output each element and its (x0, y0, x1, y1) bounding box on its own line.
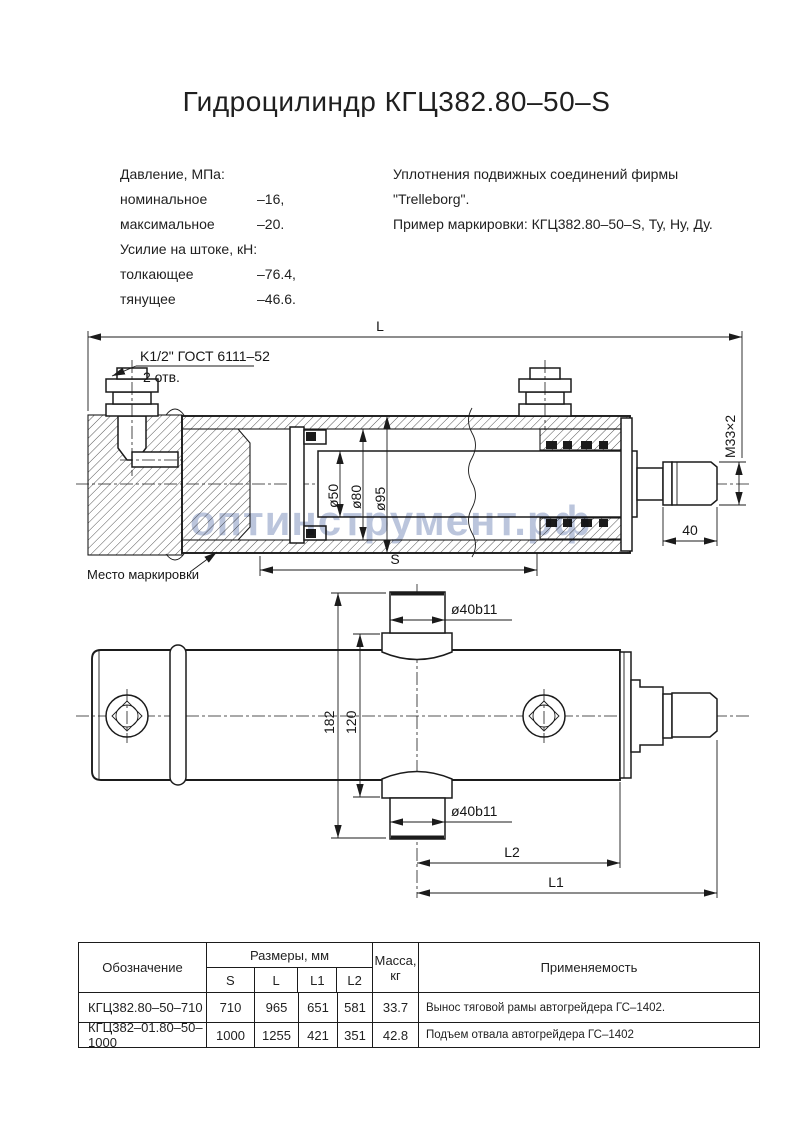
dim-tip-length-label: 40 (682, 522, 698, 538)
row1-s: 710 (207, 993, 255, 1022)
dim-pin-bottom-label: ø40b11 (451, 803, 498, 819)
row2-designation: КГЦ382–01.80–50–1000 (79, 1023, 207, 1047)
col-l-header: L (255, 968, 299, 992)
barrel-top-wall (182, 416, 630, 429)
table-header-row: Обозначение Размеры, мм S L L1 L2 Масса,… (79, 943, 759, 993)
row1-l1: 651 (299, 993, 338, 1022)
dimensions-subheader-row: S L L1 L2 (207, 968, 372, 992)
col-designation-header: Обозначение (79, 943, 207, 992)
dim-l1-label: L1 (548, 874, 564, 890)
port-thread-note: K1/2" ГОСТ 6111–52 (140, 348, 270, 364)
parameters-table: Обозначение Размеры, мм S L L1 L2 Масса,… (78, 942, 760, 1048)
col-dimensions-header: Размеры, мм (207, 943, 372, 968)
col-mass-header-line1: Масса, (374, 953, 416, 968)
marking-place-note: Место маркировки (87, 567, 199, 582)
bottom-trunnion (382, 772, 452, 840)
row2-mass: 42.8 (373, 1023, 419, 1047)
left-port-boss (106, 689, 148, 743)
site-watermark: оптинструмент.рф (190, 497, 591, 545)
dim-overall-length-label: L (376, 318, 384, 334)
top-trunnion (382, 592, 452, 660)
rear-cap-block (88, 409, 186, 560)
col-l1-header: L1 (298, 968, 337, 992)
port-channel (132, 452, 178, 467)
row2-l: 1255 (255, 1023, 299, 1047)
rod-end-thread (637, 462, 717, 505)
col-dimensions-group: Размеры, мм S L L1 L2 (207, 943, 373, 992)
dim-trunnion-height-label: 182 (321, 710, 337, 734)
dim-pin-top-label: ø40b11 (451, 601, 498, 617)
row1-designation: КГЦ382.80–50–710 (79, 993, 207, 1022)
col-mass-header-line2: кг (390, 968, 400, 983)
col-mass-header: Масса, кг (373, 943, 419, 992)
col-application-header: Применяемость (419, 943, 759, 992)
row2-application: Подъем отвала автогрейдера ГС–1402 (419, 1023, 759, 1047)
table-row: КГЦ382.80–50–710 710 965 651 581 33.7 Вы… (79, 993, 759, 1023)
col-s-header: S (207, 968, 255, 992)
marking-note-leader (190, 552, 217, 572)
row2-s: 1000 (207, 1023, 255, 1047)
table-row: КГЦ382–01.80–50–1000 1000 1255 421 351 4… (79, 1023, 759, 1047)
port-holes-note: 2 отв. (143, 369, 180, 385)
row1-application: Вынос тяговой рамы автогрейдера ГС–1402. (419, 993, 759, 1022)
row1-l2: 581 (338, 993, 373, 1022)
dim-stroke-label: S (390, 551, 399, 567)
external-view: ø40b11 ø40b11 182 120 L2 L1 (76, 584, 750, 898)
dim-flange-height-label: 120 (343, 710, 359, 734)
row2-l2: 351 (338, 1023, 373, 1047)
dim-thread-label: М33×2 (722, 415, 738, 458)
weld-collar (170, 645, 186, 785)
row2-l1: 421 (299, 1023, 338, 1047)
row1-mass: 33.7 (373, 993, 419, 1022)
right-port-boss (523, 689, 565, 743)
dim-l2-label: L2 (504, 844, 520, 860)
row1-l: 965 (255, 993, 299, 1022)
col-l2-header: L2 (337, 968, 372, 992)
rod-end-external (620, 652, 717, 778)
